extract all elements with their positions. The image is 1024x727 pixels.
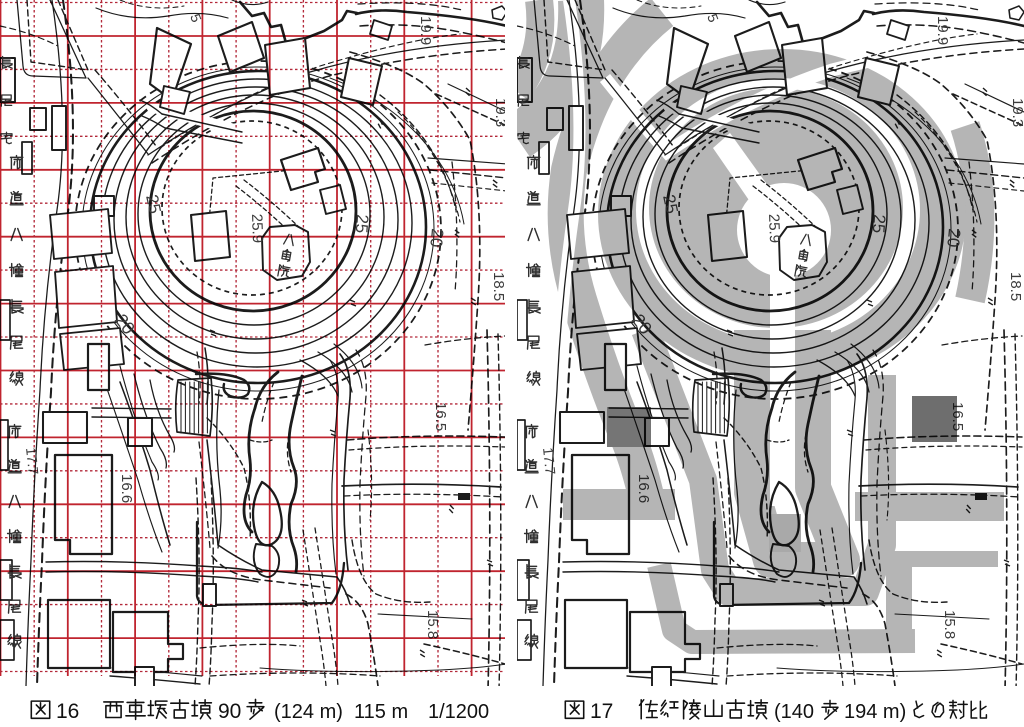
svg-text:(124 m): (124 m) [274,701,343,723]
svg-text:90: 90 [218,700,241,723]
svg-text:16: 16 [56,700,79,723]
svg-text:17: 17 [590,700,613,723]
svg-text:194 m): 194 m) [844,701,906,723]
svg-text:1/1200: 1/1200 [428,701,489,723]
svg-text:115 m: 115 m [354,701,408,723]
svg-text:(140: (140 [774,701,814,723]
